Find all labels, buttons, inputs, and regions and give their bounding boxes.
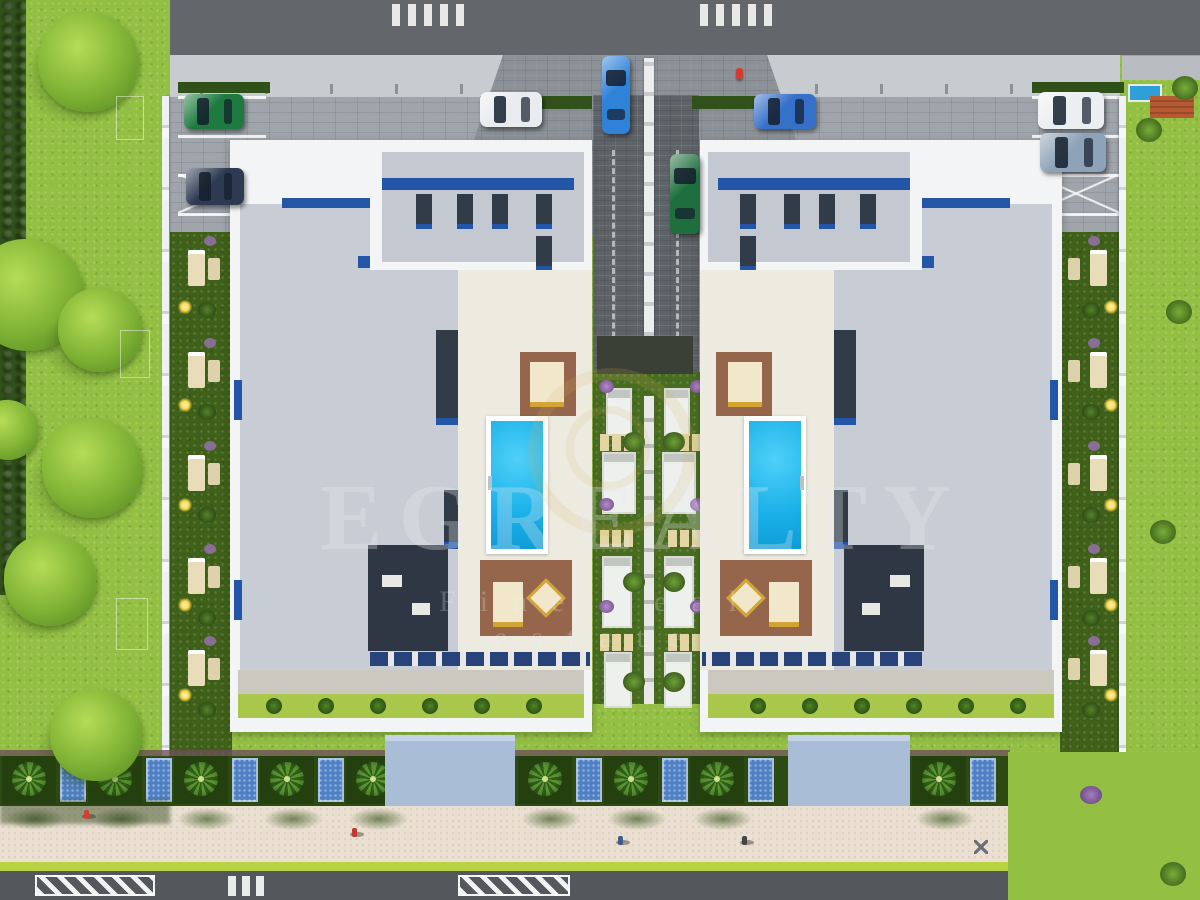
pedestrian	[352, 828, 357, 837]
blue-sedan-parked	[754, 94, 816, 129]
watermark-subtitle: Fine real estate	[320, 584, 880, 656]
rear-window	[224, 173, 232, 200]
rear-window	[1084, 138, 1093, 167]
windshield	[674, 168, 696, 184]
green-convertible-driving	[670, 154, 700, 234]
pedestrian	[742, 836, 747, 845]
rear-window	[675, 208, 695, 219]
lawn-marking	[120, 330, 150, 378]
tree-canopy	[4, 534, 96, 626]
rear-window	[607, 109, 625, 120]
windshield	[606, 70, 626, 86]
windshield	[1053, 96, 1066, 125]
tree-canopy	[42, 418, 142, 518]
rear-window	[795, 99, 804, 124]
site-plan-render: EGREALTY Fine real estate	[0, 0, 1200, 900]
right-lawn-bush	[1172, 76, 1198, 100]
rear-window	[224, 99, 232, 124]
lawn-marking	[116, 96, 144, 140]
right-lawn-bush	[1166, 300, 1192, 324]
dark-two-tone-car	[186, 168, 244, 205]
windshield	[197, 98, 209, 125]
right-lawn-bush	[1136, 118, 1162, 142]
green-suv-parked	[184, 94, 244, 129]
windshield	[768, 98, 780, 125]
tree-canopy	[50, 689, 142, 781]
rear-window	[521, 97, 530, 122]
pedestrian	[84, 810, 89, 819]
silver-blue-suv	[1040, 133, 1106, 172]
white-hatchback	[480, 92, 542, 127]
right-lawn-bush	[1150, 520, 1176, 544]
blue-sedan-driving	[602, 56, 630, 134]
lawn-marking	[116, 598, 148, 650]
windshield	[199, 172, 211, 201]
drone	[974, 840, 988, 854]
white-suv	[1038, 92, 1104, 129]
pedestrian	[618, 836, 623, 845]
watermark-title: EGREALTY	[320, 468, 880, 568]
windshield	[494, 96, 506, 123]
right-lawn-bush	[1160, 862, 1186, 886]
windshield	[1055, 137, 1068, 168]
rear-window	[1082, 97, 1091, 124]
